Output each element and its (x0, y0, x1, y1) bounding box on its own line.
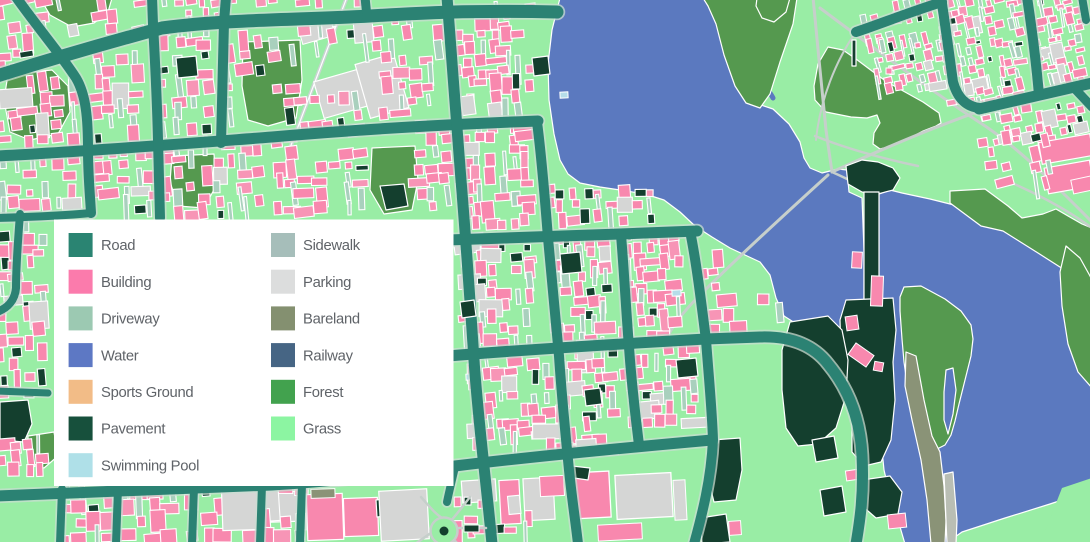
svg-text:Swimming Pool: Swimming Pool (101, 458, 199, 474)
svg-text:Grass: Grass (303, 422, 341, 438)
svg-text:Building: Building (101, 275, 151, 291)
svg-text:Parking: Parking (303, 275, 351, 291)
svg-text:Railway: Railway (303, 348, 354, 364)
svg-text:Road: Road (101, 238, 135, 254)
svg-text:Sidewalk: Sidewalk (303, 238, 361, 254)
svg-text:Water: Water (101, 348, 139, 364)
svg-text:Sports Ground: Sports Ground (101, 385, 193, 401)
svg-text:Driveway: Driveway (101, 312, 160, 328)
svg-text:Bareland: Bareland (303, 312, 360, 328)
svg-text:Pavement: Pavement (101, 422, 165, 438)
svg-text:Forest: Forest (303, 385, 343, 401)
